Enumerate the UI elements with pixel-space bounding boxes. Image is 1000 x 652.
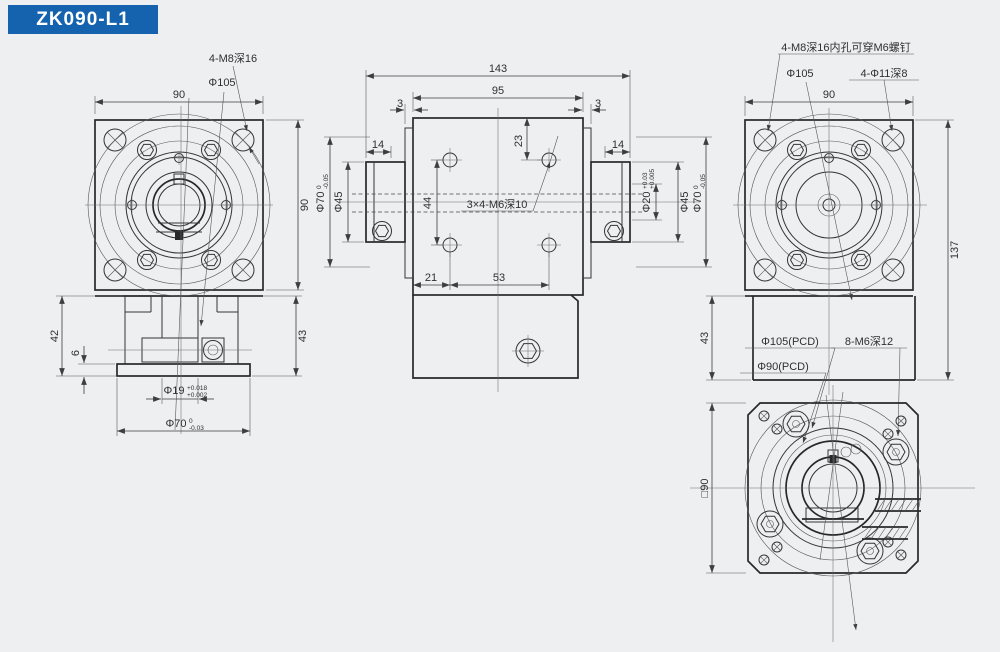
- side-d23-label: 23: [513, 135, 525, 147]
- side-phi70l-label: Φ70 0 -0.05: [315, 174, 330, 213]
- svg-text:+0.002: +0.002: [187, 392, 207, 399]
- front-phi105-label: Φ105: [208, 77, 235, 89]
- side-d95-label: 95: [492, 85, 504, 97]
- side-view: 143 95 3 3 14 14: [315, 63, 712, 392]
- side-phi45r-label: Φ45: [679, 191, 691, 212]
- front-centerlines: [85, 92, 273, 434]
- side-d14r-label: 14: [612, 139, 624, 151]
- side-dimensions: 143 95 3 3 14 14: [315, 63, 712, 290]
- back-d90-label: 90: [823, 89, 835, 101]
- svg-text:-0.03: -0.03: [189, 425, 204, 432]
- side-d21-label: 21: [425, 272, 437, 284]
- side-d53-label: 53: [493, 272, 505, 284]
- svg-text:Φ20: Φ20: [641, 191, 653, 212]
- svg-text:-0.05: -0.05: [323, 174, 330, 189]
- front-m8-label: 4-M8深16: [209, 52, 257, 65]
- front-d42-label: 42: [49, 330, 61, 342]
- front-d43-label: 43: [297, 330, 309, 342]
- side-d143-label: 143: [489, 63, 507, 75]
- front-phi70-label: Φ70 0 -0.03: [165, 418, 204, 432]
- section-hatch: [862, 499, 921, 539]
- back-view: 4-M8深16内孔可穿M6螺钉 Φ105 4-Φ11深8 90 137 43: [699, 40, 961, 443]
- back-m6-note: 8-M6深12: [845, 335, 893, 348]
- front-width-label: 90: [173, 89, 185, 101]
- back-pcd90-label: Φ90(PCD): [757, 361, 809, 373]
- back-phi105-label: Φ105: [786, 68, 813, 80]
- svg-text:Φ70: Φ70: [165, 418, 186, 430]
- front-view: Φ105 4-M8深16 90 90 42 6: [49, 52, 311, 436]
- front-d6-label: 6: [70, 350, 82, 356]
- back-dimensions: 4-M8深16内孔可穿M6螺钉 Φ105 4-Φ11深8 90 137 43: [699, 40, 961, 443]
- side-d14l-label: 14: [372, 139, 384, 151]
- front-phi19-label: Φ19 +0.018 +0.002: [163, 385, 207, 399]
- bottom-geometry: [690, 385, 975, 642]
- side-phi45l-label: Φ45: [333, 191, 345, 212]
- svg-text:+0.03: +0.03: [642, 172, 649, 189]
- svg-text:+0.005: +0.005: [649, 169, 656, 189]
- side-body-geometry: [340, 108, 700, 392]
- svg-text:+0.018: +0.018: [187, 385, 207, 392]
- svg-text:Φ70: Φ70: [692, 191, 704, 212]
- side-phi20-label: Φ20 +0.03 +0.005: [641, 169, 656, 213]
- front-height-label: 90: [299, 199, 311, 211]
- back-pcd105-label: Φ105(PCD): [761, 336, 819, 348]
- engineering-drawing: Φ105 4-M8深16 90 90 42 6: [0, 0, 1000, 652]
- side-d44-label: 44: [422, 197, 434, 209]
- svg-text:Φ19: Φ19: [163, 385, 184, 397]
- bottom-sq90-label: □90: [699, 479, 711, 498]
- back-d137-label: 137: [949, 241, 961, 259]
- back-phi11-label: 4-Φ11深8: [860, 67, 907, 80]
- svg-text:0: 0: [189, 418, 193, 425]
- svg-text:0: 0: [316, 185, 323, 189]
- front-dimensions: Φ105 4-M8深16 90 90 42 6: [49, 52, 311, 436]
- svg-text:-0.05: -0.05: [700, 174, 707, 189]
- back-m8-note: 4-M8深16内孔可穿M6螺钉: [781, 40, 911, 54]
- side-phi70r-label: Φ70 0 -0.05: [692, 174, 707, 213]
- drawing-page: ZK090-L1: [0, 0, 1000, 652]
- svg-text:0: 0: [693, 185, 700, 189]
- bottom-view: □90: [690, 385, 975, 642]
- back-d43-label: 43: [699, 332, 711, 344]
- svg-text:Φ70: Φ70: [315, 191, 327, 212]
- side-m6-note: 3×4-M6深10: [467, 198, 528, 211]
- side-d3l-label: 3: [397, 98, 403, 110]
- side-d3r-label: 3: [595, 98, 601, 110]
